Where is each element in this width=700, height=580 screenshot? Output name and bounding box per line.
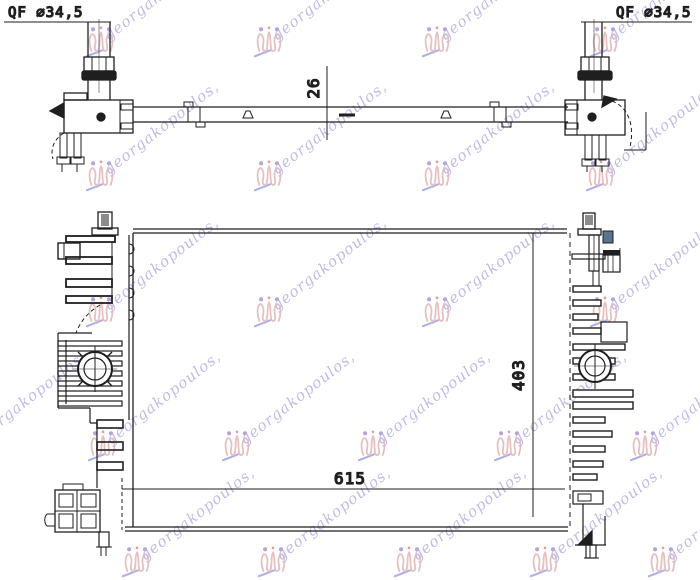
arrow-marker bbox=[50, 103, 64, 118]
radiator-technical-drawing: 26 bbox=[0, 0, 700, 580]
dimension-height: 403 bbox=[509, 233, 533, 517]
front-view: 615 403 bbox=[45, 212, 633, 558]
upper-crossmember bbox=[133, 102, 568, 127]
fitting-right-label: QF ∅34,5 bbox=[616, 5, 691, 21]
lower-bracket-right bbox=[573, 491, 606, 558]
bolt-hole bbox=[97, 113, 105, 121]
filler-neck-shading bbox=[101, 214, 109, 226]
dimension-depth-label: 26 bbox=[304, 77, 323, 98]
left-tank bbox=[45, 212, 134, 556]
dimension-width-label: 615 bbox=[334, 469, 366, 488]
mount-slot bbox=[243, 111, 253, 118]
right-tank bbox=[572, 213, 633, 558]
dimension-width: 615 bbox=[122, 469, 565, 489]
lower-connector-left bbox=[45, 484, 112, 556]
bolt-hole bbox=[588, 113, 596, 121]
dimension-height-label: 403 bbox=[509, 359, 528, 391]
inlet-fitting-right bbox=[565, 19, 692, 172]
overflow-block bbox=[603, 231, 613, 243]
catalog-drawing-page: georgakopoulos, georgakopoulos, georgako… bbox=[0, 0, 700, 580]
fitting-left-label: QF ∅34,5 bbox=[8, 5, 83, 21]
mount-slot bbox=[441, 111, 451, 118]
top-view: 26 bbox=[4, 5, 692, 172]
cap-shading bbox=[585, 215, 593, 225]
dimension-depth: 26 bbox=[304, 66, 327, 140]
inlet-fitting-left bbox=[4, 19, 133, 172]
